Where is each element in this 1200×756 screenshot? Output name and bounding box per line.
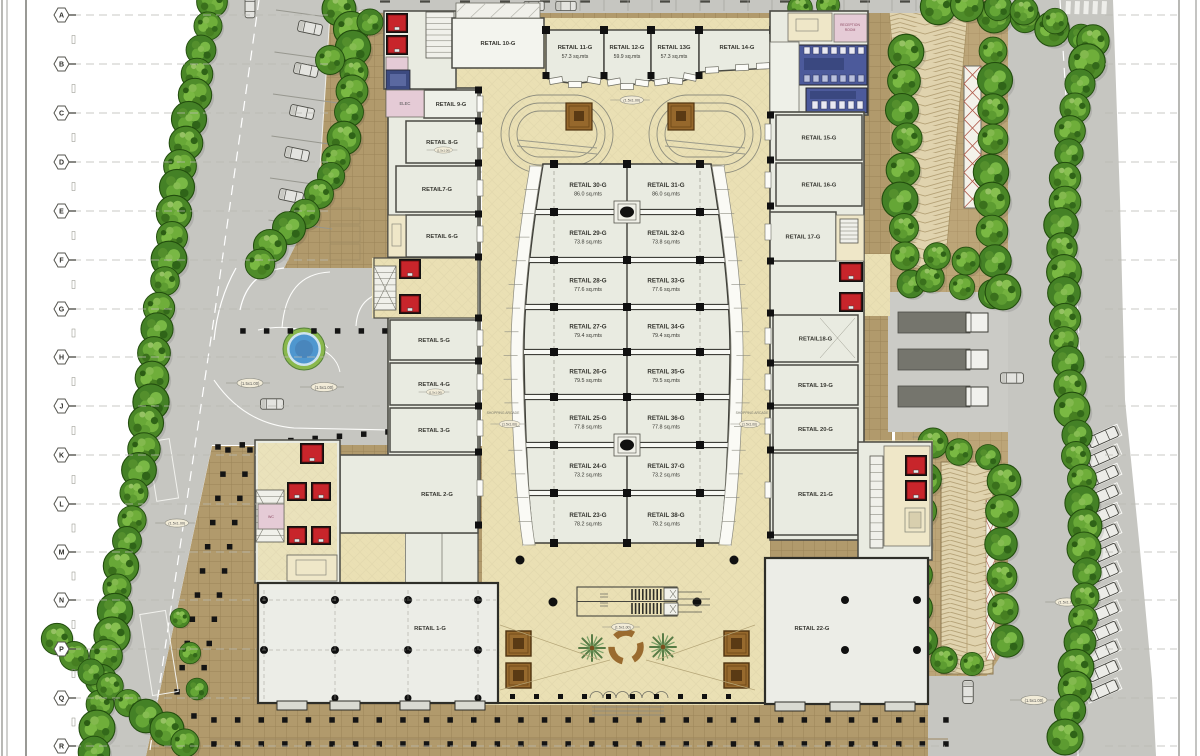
svg-text:RETAIL 14-G: RETAIL 14-G: [720, 45, 755, 51]
svg-text:73.8 sq.mts: 73.8 sq.mts: [652, 240, 680, 246]
svg-text:(1.5x1.00): (1.5x1.00): [1025, 698, 1044, 703]
svg-text:79.4 sq.mts: 79.4 sq.mts: [574, 333, 602, 339]
svg-text:RETAIL 34-G: RETAIL 34-G: [647, 324, 684, 331]
svg-text:WC: WC: [268, 515, 274, 519]
svg-text:L: L: [59, 502, 64, 509]
svg-text:(1.5x1.00): (1.5x1.00): [315, 385, 334, 390]
svg-text:57.3 sq.mts: 57.3 sq.mts: [661, 54, 688, 60]
svg-text:F: F: [59, 258, 64, 265]
svg-text:RETAIL 6-G: RETAIL 6-G: [426, 234, 458, 240]
svg-text:SHOPPING ARCADE: SHOPPING ARCADE: [736, 411, 770, 415]
svg-text:RETAIL 26-G: RETAIL 26-G: [569, 369, 606, 376]
svg-text:RETAIL 12-G: RETAIL 12-G: [610, 45, 645, 51]
svg-text:77.6 sq.mts: 77.6 sq.mts: [574, 287, 602, 293]
svg-text:73.2 sq.mts: 73.2 sq.mts: [652, 473, 680, 479]
svg-text:A: A: [59, 13, 64, 20]
svg-text:R: R: [59, 744, 64, 751]
svg-text:78.2 sq.mts: 78.2 sq.mts: [652, 522, 680, 528]
svg-text:K: K: [59, 453, 64, 460]
svg-text:RETAIL 27-G: RETAIL 27-G: [569, 324, 606, 331]
svg-text:59.9 sq.mts: 59.9 sq.mts: [614, 54, 641, 60]
svg-text:(1.5x1.00): (1.5x1.00): [241, 381, 260, 386]
svg-text:RETAIL 35-G: RETAIL 35-G: [647, 369, 684, 376]
svg-text:RETAIL 2-G: RETAIL 2-G: [421, 492, 453, 498]
svg-text:79.4 sq.mts: 79.4 sq.mts: [652, 333, 680, 339]
svg-text:E: E: [59, 209, 64, 216]
svg-text:RETAIL 21-G: RETAIL 21-G: [798, 492, 833, 498]
svg-text:(1.5x1.00): (1.5x1.00): [437, 148, 450, 152]
svg-text:(1.5x1.00): (1.5x1.00): [615, 626, 631, 630]
svg-text:RECEPTION: RECEPTION: [840, 23, 860, 27]
svg-text:(1.5x1.00): (1.5x1.00): [502, 422, 517, 426]
svg-text:79.5 sq.mts: 79.5 sq.mts: [574, 378, 602, 384]
svg-text:RETAIL 28-G: RETAIL 28-G: [569, 278, 606, 285]
svg-text:RETAIL 19-G: RETAIL 19-G: [798, 383, 833, 389]
svg-text:(1.5x1.00): (1.5x1.00): [429, 390, 442, 394]
svg-text:RETAIL 16-G: RETAIL 16-G: [802, 183, 837, 189]
svg-text:RETAIL 9-G: RETAIL 9-G: [436, 102, 467, 108]
svg-text:ELEC: ELEC: [400, 101, 411, 106]
svg-text:RETAIL 15-G: RETAIL 15-G: [802, 136, 837, 142]
svg-text:RETAIL 17-G: RETAIL 17-G: [786, 235, 821, 241]
svg-text:RETAIL 32-G: RETAIL 32-G: [647, 230, 684, 237]
svg-text:77.8 sq.mts: 77.8 sq.mts: [652, 425, 680, 431]
svg-text:RETAIL 38-G: RETAIL 38-G: [647, 512, 684, 519]
svg-text:RETAIL 5-G: RETAIL 5-G: [418, 338, 450, 344]
svg-text:(1.5x1.00): (1.5x1.00): [623, 99, 641, 103]
svg-text:RETAIL 36-G: RETAIL 36-G: [647, 415, 684, 422]
svg-text:J: J: [60, 404, 64, 411]
svg-text:RETAIL 29-G: RETAIL 29-G: [569, 230, 606, 237]
svg-text:RETAIL 25-G: RETAIL 25-G: [569, 415, 606, 422]
svg-text:H: H: [59, 355, 64, 362]
svg-text:G: G: [59, 307, 65, 314]
svg-text:RETAIL 4-G: RETAIL 4-G: [418, 382, 450, 388]
svg-text:RETAIL7-G: RETAIL7-G: [422, 187, 453, 193]
svg-text:D: D: [59, 160, 64, 167]
svg-text:P: P: [59, 647, 64, 654]
svg-text:77.6 sq.mts: 77.6 sq.mts: [652, 287, 680, 293]
svg-text:RETAIL 13G: RETAIL 13G: [658, 45, 691, 51]
svg-text:RETAIL 23-G: RETAIL 23-G: [569, 512, 606, 519]
svg-text:RETAIL18-G: RETAIL18-G: [799, 337, 833, 343]
svg-text:(1.5x1.00): (1.5x1.00): [742, 422, 757, 426]
svg-text:RETAIL 8-G: RETAIL 8-G: [426, 140, 458, 146]
svg-text:79.5 sq.mts: 79.5 sq.mts: [652, 378, 680, 384]
svg-text:B: B: [59, 62, 64, 69]
svg-text:77.8 sq.mts: 77.8 sq.mts: [574, 425, 602, 431]
svg-text:RETAIL 37-G: RETAIL 37-G: [647, 463, 684, 470]
svg-text:RETAIL 1-G: RETAIL 1-G: [414, 626, 446, 632]
svg-text:57.3 sq.mts: 57.3 sq.mts: [562, 54, 589, 60]
svg-text:RETAIL 3-G: RETAIL 3-G: [418, 428, 450, 434]
svg-text:73.2 sq.mts: 73.2 sq.mts: [574, 473, 602, 479]
svg-text:C: C: [59, 111, 64, 118]
svg-text:78.2 sq.mts: 78.2 sq.mts: [574, 522, 602, 528]
svg-text:RETAIL 30-G: RETAIL 30-G: [569, 182, 606, 189]
svg-text:73.8 sq.mts: 73.8 sq.mts: [574, 240, 602, 246]
svg-text:M: M: [59, 550, 65, 557]
svg-text:(1.5x1.00): (1.5x1.00): [168, 522, 186, 526]
svg-text:RETAIL 33-G: RETAIL 33-G: [647, 278, 684, 285]
svg-text:RETAIL 31-G: RETAIL 31-G: [647, 182, 684, 189]
svg-text:RETAIL 22-G: RETAIL 22-G: [795, 626, 830, 632]
svg-text:RETAIL 11-G: RETAIL 11-G: [558, 45, 593, 51]
svg-text:Q: Q: [59, 696, 65, 703]
svg-text:N: N: [59, 598, 64, 605]
svg-text:SHOPPING ARCADE: SHOPPING ARCADE: [487, 411, 521, 415]
svg-text:86.0 sq.mts: 86.0 sq.mts: [574, 192, 602, 198]
svg-text:RETAIL 10-G: RETAIL 10-G: [481, 41, 516, 47]
svg-text:ROOM: ROOM: [845, 28, 856, 32]
svg-text:RETAIL 20-G: RETAIL 20-G: [798, 427, 833, 433]
svg-text:RETAIL 24-G: RETAIL 24-G: [569, 463, 606, 470]
svg-text:86.0 sq.mts: 86.0 sq.mts: [652, 192, 680, 198]
